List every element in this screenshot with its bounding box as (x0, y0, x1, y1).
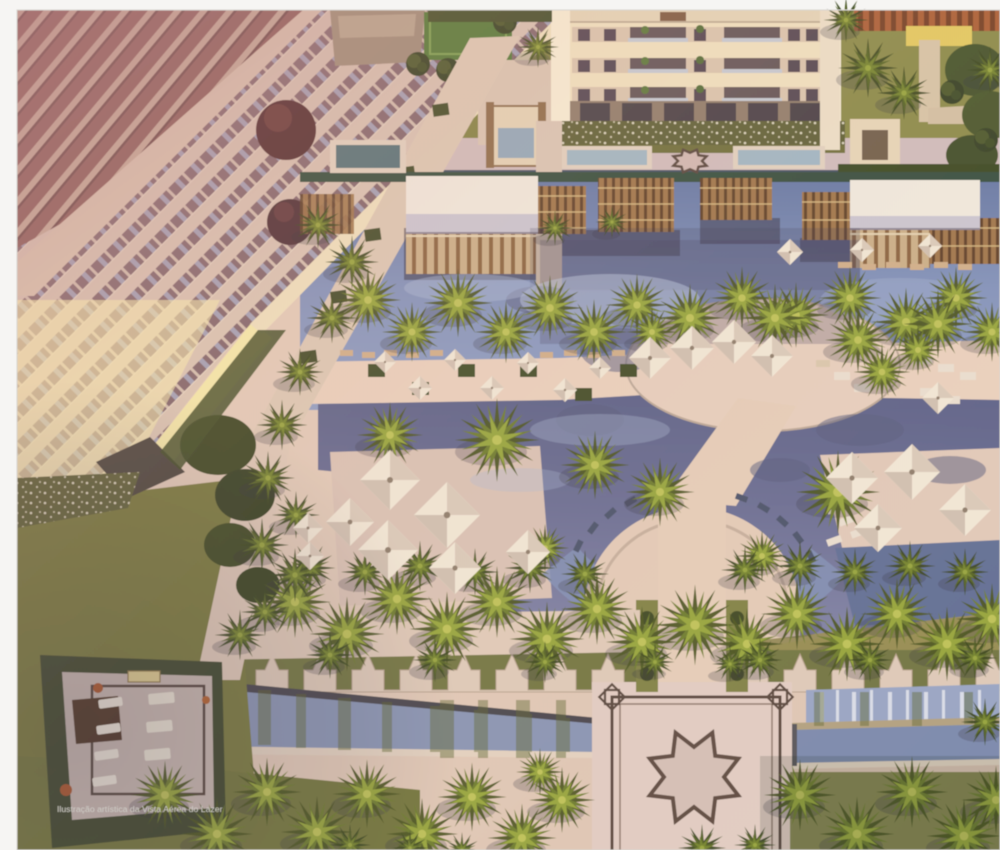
svg-text:Ilustração artística da Vista: Ilustração artística da Vista Aérea do L… (57, 804, 223, 814)
